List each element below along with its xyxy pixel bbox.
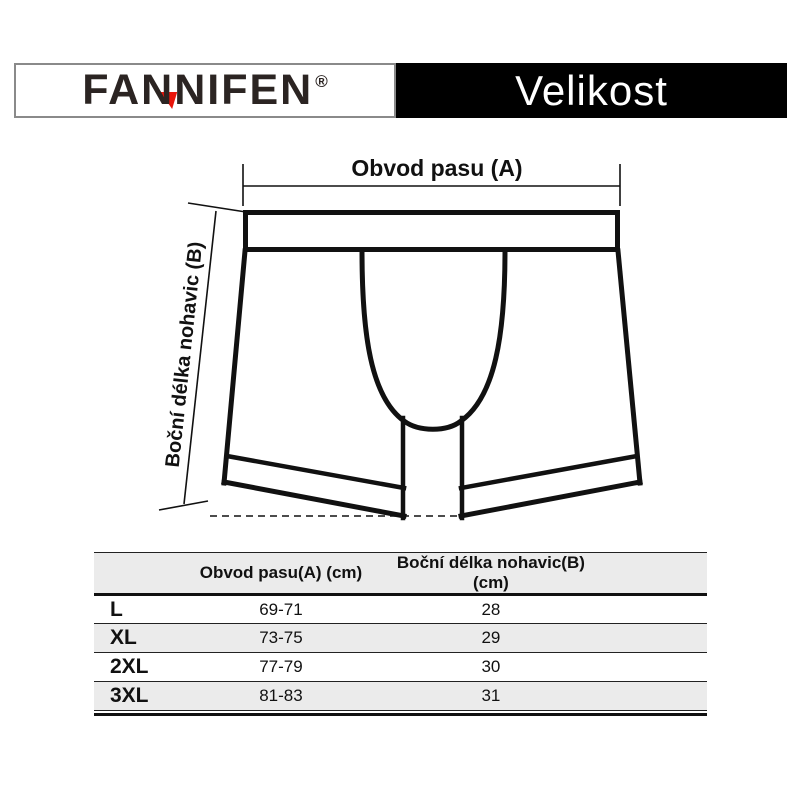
side-length-cell: 31 — [388, 682, 593, 711]
filler-cell — [594, 653, 707, 682]
table-row: XL 73-75 29 — [94, 624, 707, 653]
waistband-outline — [246, 213, 618, 250]
filler-cell — [594, 624, 707, 653]
filler-cell — [594, 595, 707, 624]
size-chart-page: { "header": { "brand": "FANNIFEN", "regi… — [0, 0, 800, 800]
header-side-length-column: Boční délka nohavic(B) (cm) — [388, 553, 593, 595]
brand-name: FANNIFEN — [82, 66, 313, 114]
waist-cell: 77-79 — [174, 653, 389, 682]
filler-cell — [594, 682, 707, 711]
table-row: L 69-71 28 — [94, 595, 707, 624]
size-cell: L — [94, 595, 174, 624]
crotch-seam-curve — [362, 251, 505, 429]
size-cell: 2XL — [94, 653, 174, 682]
side-length-cell: 30 — [388, 653, 593, 682]
waist-cell: 69-71 — [174, 595, 389, 624]
boxer-body-outline — [224, 251, 640, 516]
size-table: Obvod pasu(A) (cm) Boční délka nohavic(B… — [94, 552, 707, 711]
size-cell: XL — [94, 624, 174, 653]
registered-trademark-icon: ® — [315, 72, 328, 91]
header-waist-column: Obvod pasu(A) (cm) — [174, 553, 389, 595]
size-cell: 3XL — [94, 682, 174, 711]
waist-cell: 81-83 — [174, 682, 389, 711]
header-filler-column — [594, 553, 707, 595]
leg-hem-lines — [227, 418, 637, 518]
waist-cell: 73-75 — [174, 624, 389, 653]
brand-logo: FANNIFEN® — [82, 66, 328, 115]
table-header-row: Obvod pasu(A) (cm) Boční délka nohavic(B… — [94, 553, 707, 595]
side-length-cell: 28 — [388, 595, 593, 624]
header-size-column — [94, 553, 174, 595]
size-table-wrap: Obvod pasu(A) (cm) Boční délka nohavic(B… — [94, 552, 707, 716]
waist-dimension-label: Obvod pasu (A) — [287, 155, 587, 182]
table-row: 3XL 81-83 31 — [94, 682, 707, 711]
side-length-cell: 29 — [388, 624, 593, 653]
table-row: 2XL 77-79 30 — [94, 653, 707, 682]
